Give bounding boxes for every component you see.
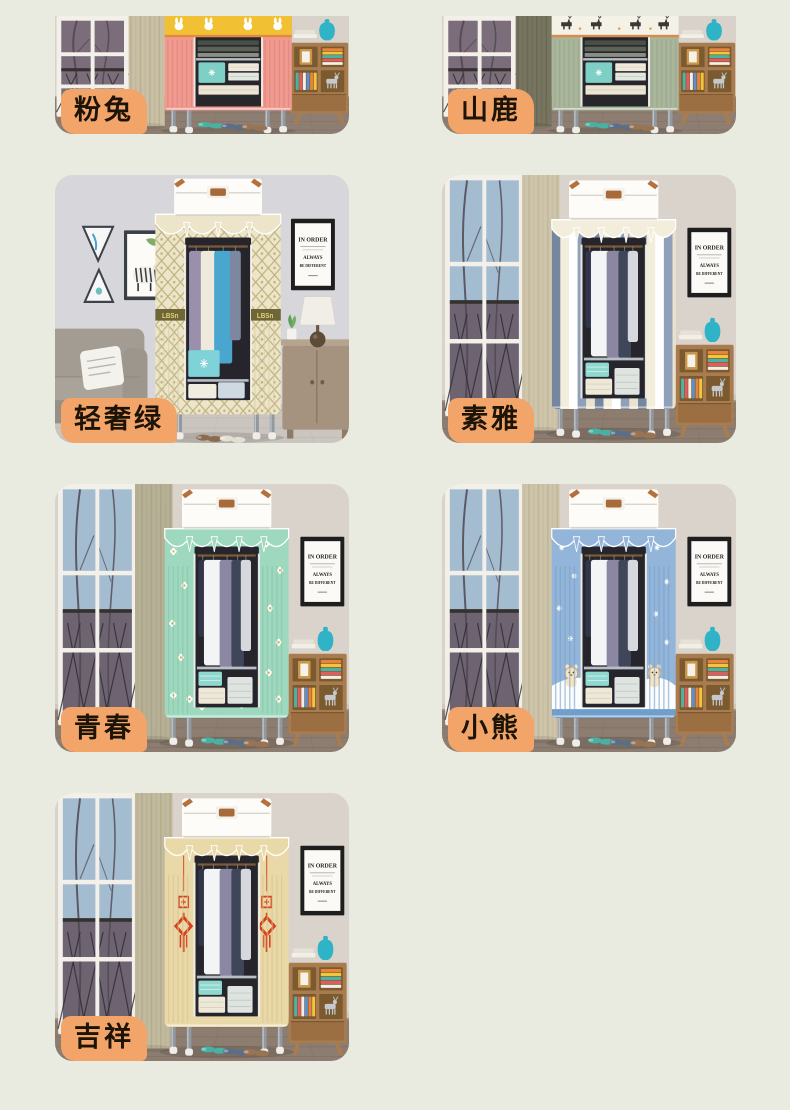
svg-text:BE DIFFERENT: BE DIFFERENT bbox=[309, 581, 336, 585]
svg-text:IN ORDER: IN ORDER bbox=[695, 553, 725, 560]
svg-text:ALWAYS: ALWAYS bbox=[313, 572, 332, 578]
svg-text:ALWAYS: ALWAYS bbox=[700, 263, 719, 269]
variant-label-badge: 吉祥 bbox=[61, 1016, 147, 1061]
product-variant-tile-pink-rabbit[interactable]: 粉兔 bbox=[55, 16, 349, 134]
variant-label-badge: 青春 bbox=[61, 707, 147, 752]
product-variant-tile-mountain-deer[interactable]: 山鹿 bbox=[442, 16, 736, 134]
product-variant-tile-luxury-green[interactable]: IN ORDERALWAYSBE DIFFERENTLBSnLBSn 轻奢绿 bbox=[55, 175, 349, 443]
svg-text:IN ORDER: IN ORDER bbox=[298, 236, 328, 243]
variant-label-badge: 粉兔 bbox=[61, 89, 147, 134]
variant-label-badge: 小熊 bbox=[448, 707, 534, 752]
svg-text:ALWAYS: ALWAYS bbox=[700, 572, 719, 578]
svg-text:IN ORDER: IN ORDER bbox=[308, 862, 338, 869]
svg-text:BE DIFFERENT: BE DIFFERENT bbox=[696, 581, 723, 585]
svg-text:BE DIFFERENT: BE DIFFERENT bbox=[309, 890, 336, 894]
svg-text:LBSn: LBSn bbox=[257, 313, 273, 320]
product-variant-tile-little-bear[interactable]: IN ORDERALWAYSBE DIFFERENT 小熊 bbox=[442, 484, 736, 752]
svg-text:IN ORDER: IN ORDER bbox=[695, 244, 725, 251]
svg-text:ALWAYS: ALWAYS bbox=[303, 255, 322, 261]
svg-text:LBSn: LBSn bbox=[162, 313, 178, 320]
svg-text:IN ORDER: IN ORDER bbox=[308, 553, 338, 560]
variant-label-badge: 山鹿 bbox=[448, 89, 534, 134]
svg-text:BE DIFFERENT: BE DIFFERENT bbox=[696, 272, 723, 276]
product-variant-tile-youth-mint[interactable]: IN ORDERALWAYSBE DIFFERENT 青春 bbox=[55, 484, 349, 752]
svg-text:ALWAYS: ALWAYS bbox=[313, 881, 332, 887]
product-variant-tile-elegant-stripes[interactable]: IN ORDERALWAYSBE DIFFERENT 素雅 bbox=[442, 175, 736, 443]
variant-label-badge: 素雅 bbox=[448, 398, 534, 443]
svg-text:BE DIFFERENT: BE DIFFERENT bbox=[300, 264, 327, 268]
variant-label-badge: 轻奢绿 bbox=[61, 398, 177, 443]
product-variant-tile-auspicious[interactable]: IN ORDERALWAYSBE DIFFERENT 吉祥 bbox=[55, 793, 349, 1061]
product-gallery: 粉兔 山鹿 IN ORDERALWAYSBE DIFFERENTLBSnLBSn… bbox=[0, 0, 790, 1077]
